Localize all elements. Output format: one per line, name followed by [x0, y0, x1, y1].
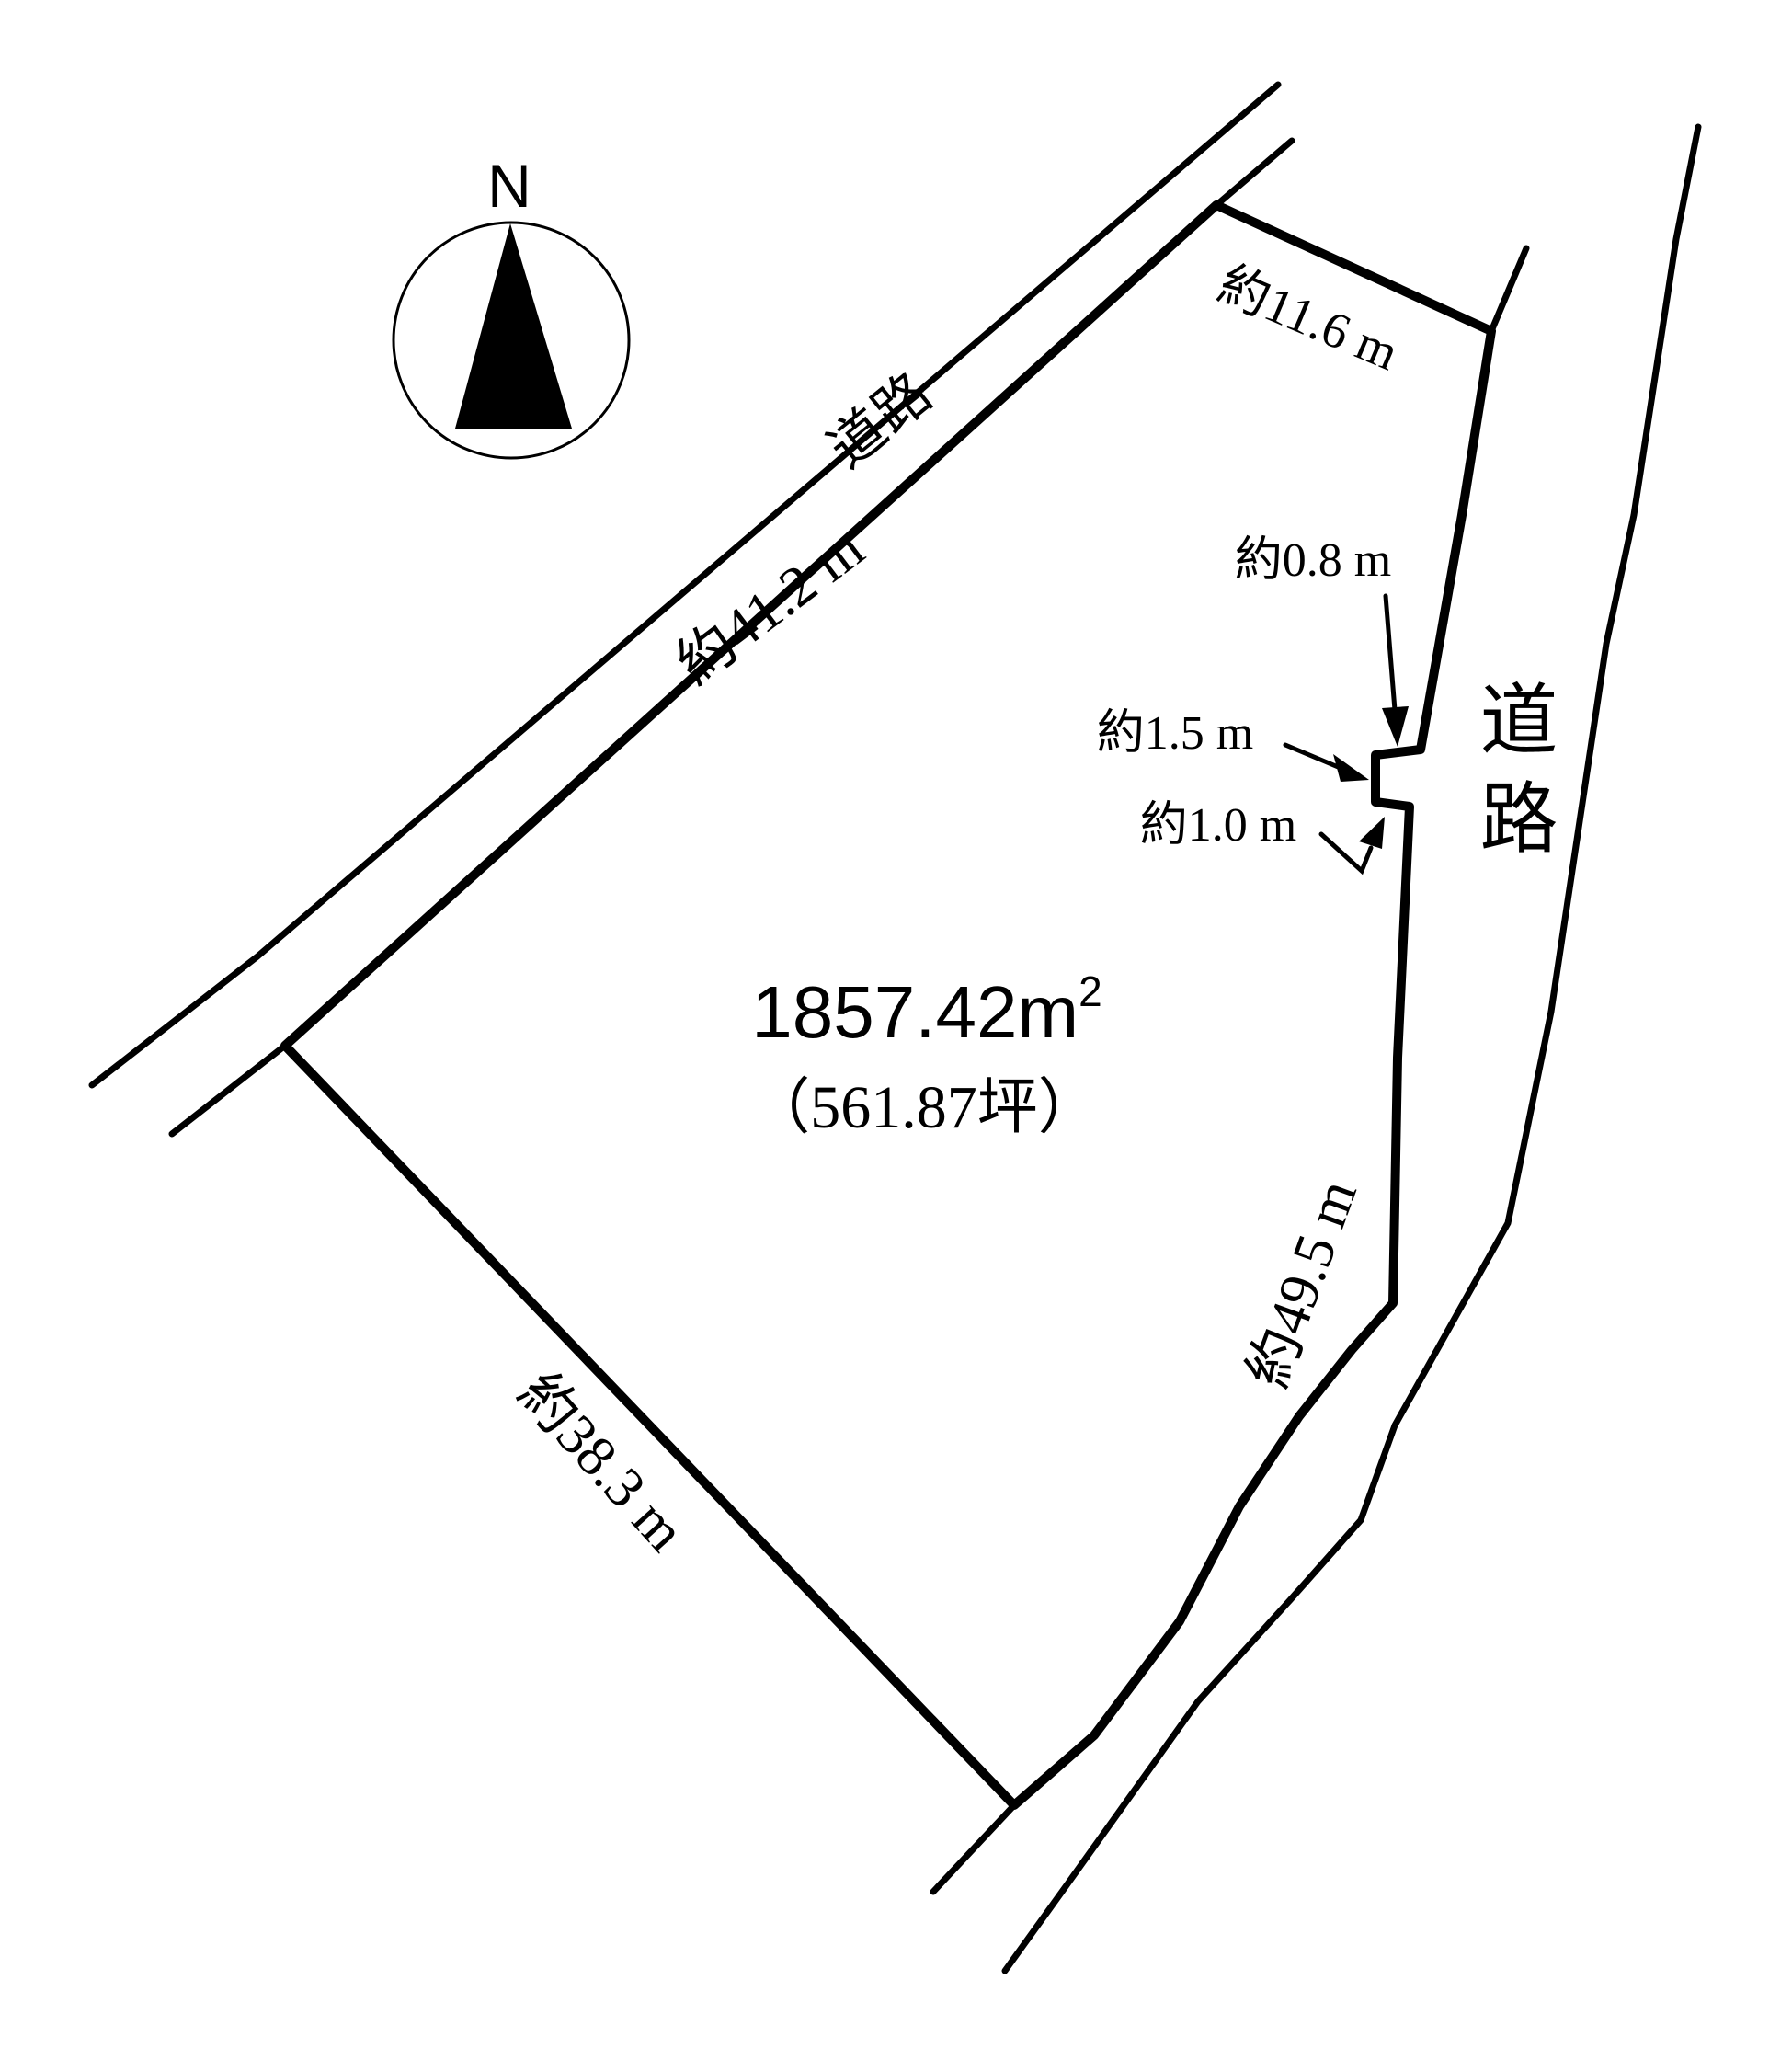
- compass: [394, 223, 629, 458]
- dimension-arrows: [1285, 596, 1409, 871]
- top-road-lines: [92, 85, 1292, 1134]
- dimension-notch-width: 約1.5 m: [1097, 710, 1253, 758]
- arrow-1-5m: [1285, 745, 1369, 782]
- site-plan-diagram: N 道路 約41.2 m 約11.6 m 約0.8 m 約1.5 m 約1.0 …: [0, 0, 1792, 2060]
- right-road-left-edge-lower-stub: [933, 1805, 1014, 1892]
- arrow-0-8m: [1382, 596, 1409, 747]
- right-road-left-edge-upper-stub: [1491, 248, 1526, 331]
- dimension-notch-offset: 約0.8 m: [1235, 537, 1391, 585]
- area-unit-superscript: 2: [1079, 970, 1102, 1013]
- top-road-inner-edge-lower-stub: [172, 1046, 285, 1134]
- dimension-notch-depth: 約1.0 m: [1140, 802, 1296, 850]
- plot-area-tsubo: （561.87坪）: [749, 1078, 1099, 1139]
- arrowhead-down-icon: [1382, 706, 1409, 747]
- arrow-1-0m: [1321, 817, 1385, 871]
- arrowhead-right-icon: [1333, 754, 1369, 782]
- top-road-outer-edge: [92, 85, 1278, 1085]
- compass-north-label: N: [487, 155, 531, 216]
- top-road-inner-edge-upper-stub: [1216, 141, 1292, 205]
- arrowhead-up-right-icon: [1359, 817, 1385, 849]
- plot-area-square-meters: 1857.42m2: [751, 970, 1101, 1049]
- compass-north-needle-icon: [455, 223, 572, 429]
- right-road-right-edge: [1005, 127, 1698, 1971]
- right-road-label: 道路: [1472, 679, 1550, 875]
- area-unit: m: [1017, 971, 1079, 1053]
- area-value: 1857.42: [751, 971, 1017, 1053]
